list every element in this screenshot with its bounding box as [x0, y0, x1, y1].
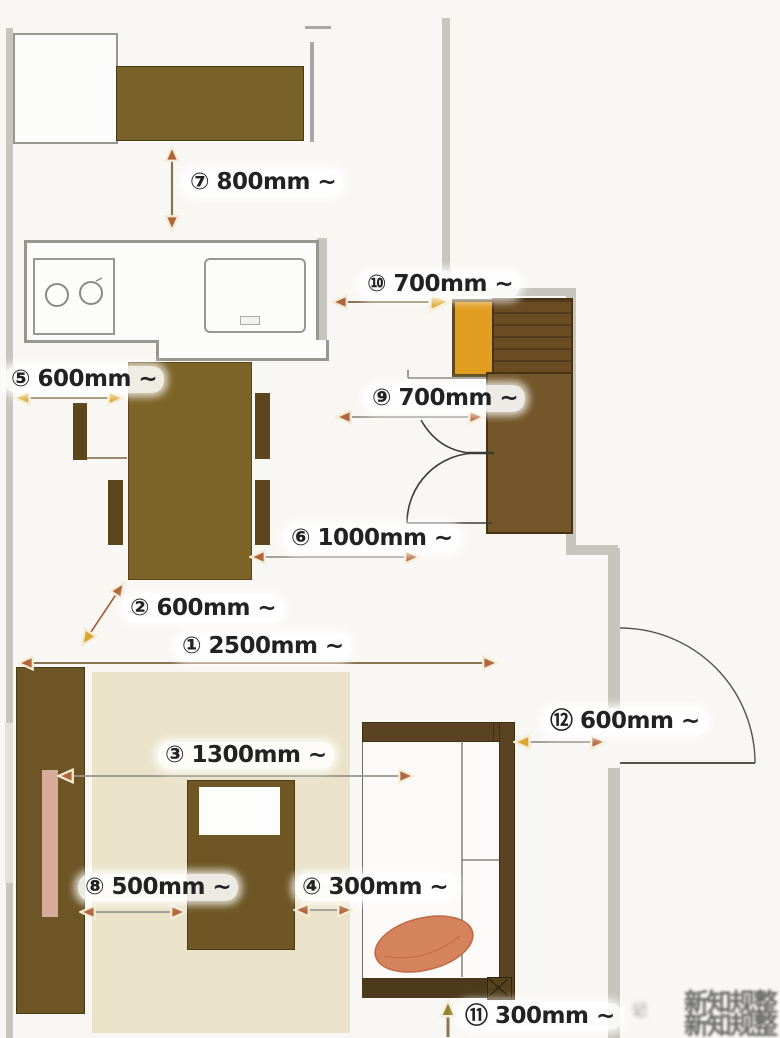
dining-table	[128, 362, 252, 580]
faucet	[240, 316, 260, 325]
dim-label-9: ⑨ 700mm ~	[365, 385, 525, 412]
wall-stub-vertical	[310, 42, 314, 142]
coffee-table-tray	[199, 787, 280, 835]
wall-hall-upper	[608, 548, 620, 712]
sofa-arm-corner	[487, 977, 512, 1000]
tv-panel	[42, 770, 58, 917]
watermark: 记 新知规整 新知规整	[684, 991, 776, 1038]
sofa-back-right	[499, 722, 515, 1000]
dim-label-3: ③ 1300mm ~	[158, 742, 334, 769]
dim-label-4: ④ 300mm ~	[295, 874, 455, 901]
dim-label-5: ⑤ 600mm ~	[4, 366, 164, 393]
chair	[255, 393, 270, 459]
dim-label-6: ⑥ 1000mm ~	[284, 525, 460, 552]
stove	[33, 258, 115, 335]
dim-label-8: ⑧ 500mm ~	[78, 874, 238, 901]
dim-label-7: ⑦ 800mm ~	[183, 169, 343, 196]
dim-label-12: ⑫ 600mm ~	[543, 708, 707, 735]
dim-arrow-2	[83, 584, 123, 644]
wall-stub-horizontal	[305, 26, 331, 29]
sofa-seat	[362, 740, 502, 980]
dim-label-11: ⑪ 300mm ~	[458, 1003, 622, 1030]
sideboard	[116, 66, 304, 141]
chair	[255, 480, 270, 545]
refrigerator	[492, 298, 573, 376]
chair	[73, 403, 87, 460]
upper-cabinet	[13, 33, 118, 144]
sofa-back-top	[362, 722, 495, 742]
watermark-line: 新知规整	[684, 1014, 776, 1038]
wall-top-right	[442, 18, 450, 280]
dim-label-1: ① 2500mm ~	[175, 633, 351, 660]
floor-plan-canvas: ⑦ 800mm ~ ⑩ 700mm ~ ⑤ 600mm ~ ⑨ 700mm ~ …	[0, 0, 780, 1038]
window-left	[5, 723, 13, 883]
entry-door-arc	[620, 628, 755, 763]
kitchen-counter-return	[156, 340, 329, 361]
dim-label-10: ⑩ 700mm ~	[360, 271, 520, 298]
chair	[108, 480, 123, 545]
watermark-stamp: 记	[632, 1003, 646, 1017]
dim-label-2: ② 600mm ~	[123, 595, 283, 622]
wall-hall-lower	[608, 768, 620, 1038]
wall-left	[6, 28, 13, 1038]
